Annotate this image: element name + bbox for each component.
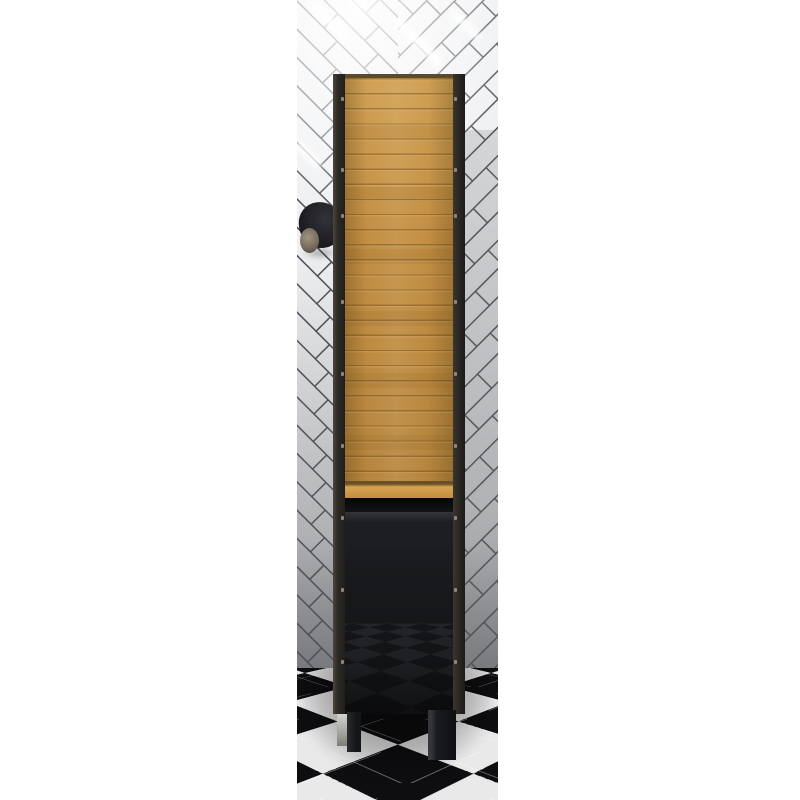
cabinet-leg-front-right <box>428 710 456 760</box>
gloss-black-door <box>345 512 453 714</box>
hinge-pin <box>341 214 344 218</box>
page-background: { "meta": { "image_type": "3d-product-re… <box>0 0 800 800</box>
hinge-pin <box>454 300 457 304</box>
hinge-pin <box>341 168 344 172</box>
shutter-bottom-rail <box>345 481 453 498</box>
hinge-pin <box>341 516 344 520</box>
hinge-pin <box>341 97 344 101</box>
door-shading <box>345 512 453 714</box>
hinge-pin <box>454 97 457 101</box>
hinge-pin <box>454 660 457 664</box>
hinge-pin <box>341 300 344 304</box>
cabinet-frame-right <box>453 74 465 714</box>
hinge-pin <box>341 588 344 592</box>
hinge-pin <box>341 444 344 448</box>
wood-tambour-door <box>345 78 453 481</box>
cabinet-leg-front-left <box>347 712 361 752</box>
hinge-pin <box>454 168 457 172</box>
hinge-pin <box>341 660 344 664</box>
hinge-pin <box>454 444 457 448</box>
cabinet-frame-left <box>333 74 345 714</box>
hinge-pin <box>454 516 457 520</box>
hinge-pin <box>341 372 344 376</box>
tall-cabinet <box>297 0 498 800</box>
hinge-pin <box>454 372 457 376</box>
hinge-pin <box>454 214 457 218</box>
handle-recess <box>345 498 453 512</box>
render-scene <box>297 0 498 800</box>
door-top-sheen <box>345 512 453 522</box>
hinge-pin <box>454 588 457 592</box>
